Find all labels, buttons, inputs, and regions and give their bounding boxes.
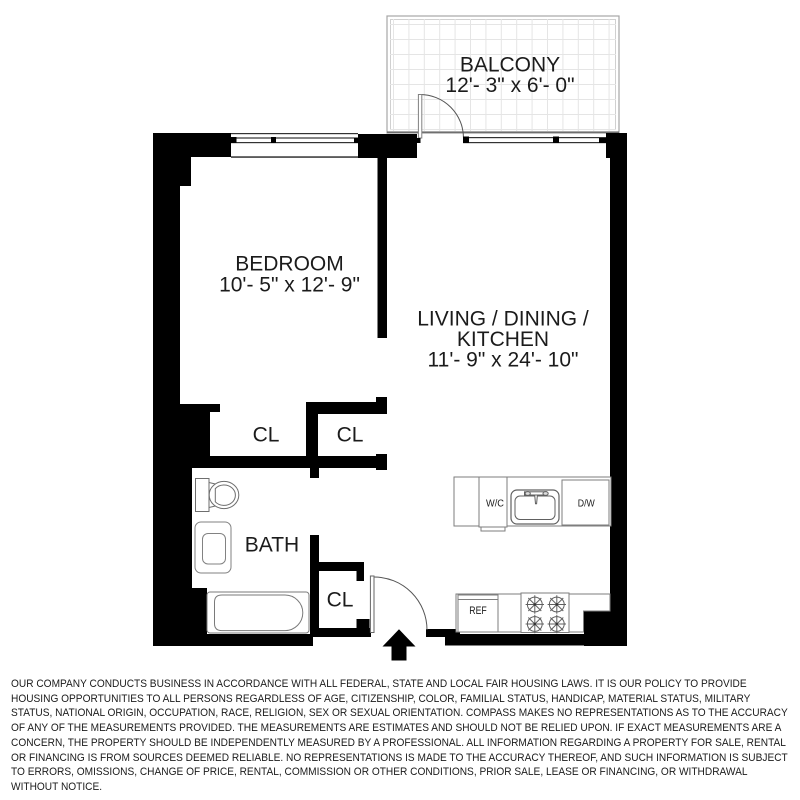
svg-text:D/W: D/W bbox=[578, 498, 595, 510]
svg-text:CL: CL bbox=[327, 589, 354, 612]
svg-text:REF: REF bbox=[469, 605, 487, 617]
svg-text:BEDROOM: BEDROOM bbox=[235, 253, 344, 276]
svg-text:CL: CL bbox=[337, 424, 364, 447]
svg-text:11'- 9" x 24'- 10": 11'- 9" x 24'- 10" bbox=[428, 349, 579, 372]
svg-text:BATH: BATH bbox=[245, 534, 299, 557]
svg-text:10'- 5" x 12'- 9": 10'- 5" x 12'- 9" bbox=[219, 274, 360, 297]
svg-text:W/C: W/C bbox=[486, 498, 504, 510]
svg-text:12'- 3" x 6'- 0": 12'- 3" x 6'- 0" bbox=[445, 74, 574, 97]
svg-text:CL: CL bbox=[253, 424, 280, 447]
